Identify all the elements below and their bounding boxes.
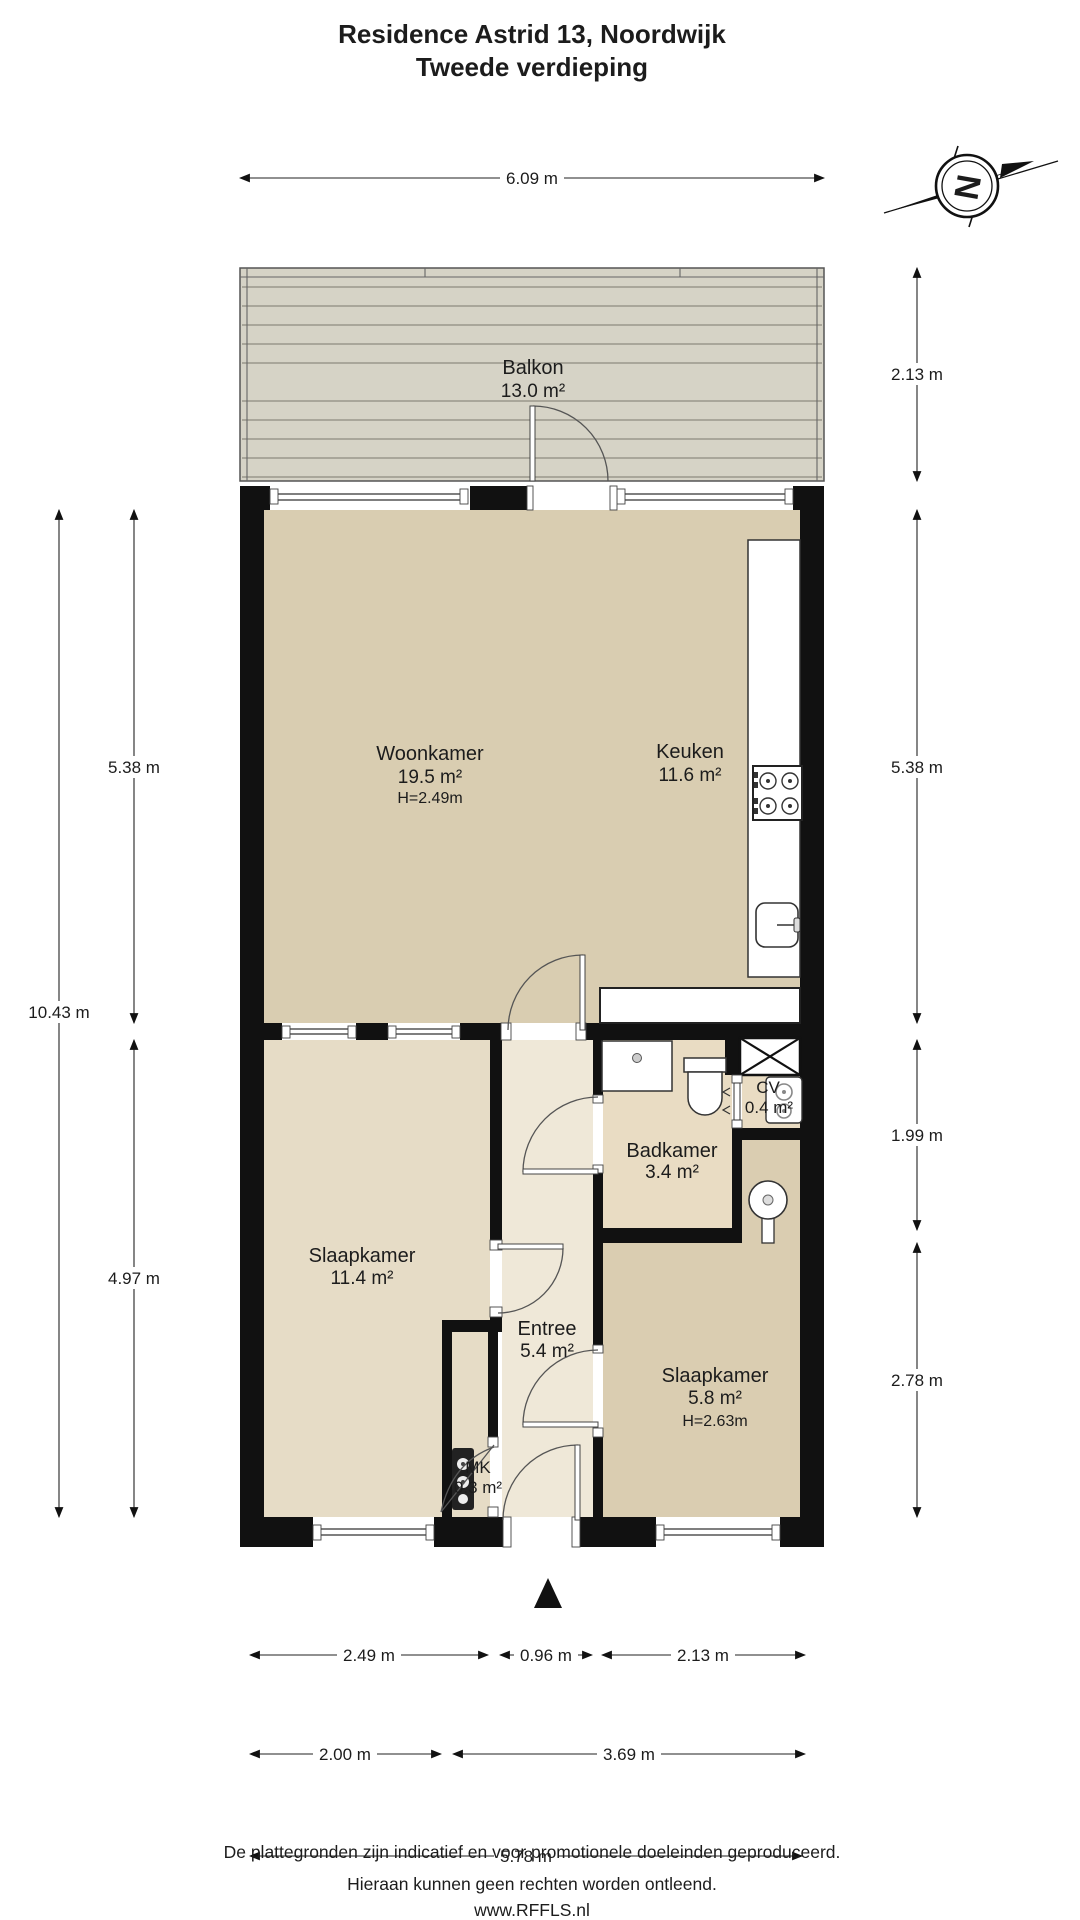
dimension-top: 6.09 m bbox=[240, 167, 824, 189]
closet-band bbox=[600, 988, 800, 1023]
toilet-icon bbox=[684, 1058, 726, 1115]
dimension-right-middle: 1.99 m bbox=[885, 1040, 949, 1230]
label-keuken: Keuken bbox=[656, 741, 724, 763]
floor-plan-canvas: Residence Astrid 13, Noordwijk Tweede ve… bbox=[0, 0, 1080, 1920]
svg-text:10.43 m: 10.43 m bbox=[28, 1003, 89, 1022]
dimension-bottom-row2: 2.00 m 3.69 m bbox=[250, 1743, 805, 1765]
kitchen-sink-icon bbox=[756, 903, 800, 947]
svg-text:2.49 m: 2.49 m bbox=[343, 1646, 395, 1665]
label-slaapkamer-groot-area: 11.4 m² bbox=[330, 1268, 393, 1289]
footer-disclaimer: De plattegronden zijn indicatief en voor… bbox=[224, 1842, 841, 1920]
dimension-left-lower: 4.97 m bbox=[102, 1040, 166, 1517]
dimension-left-outer: 10.43 m bbox=[22, 510, 96, 1517]
label-woonkamer: Woonkamer bbox=[376, 743, 484, 765]
svg-text:2.00 m: 2.00 m bbox=[319, 1745, 371, 1764]
dimension-right-living: 5.38 m bbox=[885, 510, 949, 1023]
svg-text:1.99 m: 1.99 m bbox=[891, 1126, 943, 1145]
svg-text:0.96 m: 0.96 m bbox=[520, 1646, 572, 1665]
label-mk-area: 0.3 m² bbox=[454, 1478, 503, 1497]
dimension-bottom-row1: 2.49 m 0.96 m 2.13 m bbox=[250, 1644, 805, 1666]
washbasin-icon bbox=[602, 1041, 672, 1091]
shaft-icon bbox=[740, 1038, 800, 1075]
wall-right bbox=[800, 510, 824, 1517]
dimension-right-balcony: 2.13 m bbox=[885, 268, 949, 481]
svg-text:5.38 m: 5.38 m bbox=[108, 758, 160, 777]
page-title: Residence Astrid 13, Noordwijk bbox=[338, 19, 726, 49]
label-entree: Entree bbox=[518, 1318, 577, 1340]
label-slaapkamer-klein-area: 5.8 m² bbox=[688, 1388, 742, 1409]
floorplan-page: Residence Astrid 13, Noordwijk Tweede ve… bbox=[0, 0, 1080, 1920]
dimension-right-lower: 2.78 m bbox=[885, 1243, 949, 1517]
label-slaapkamer-klein-height: H=2.63m bbox=[682, 1413, 747, 1430]
entrance-arrow-icon bbox=[534, 1578, 562, 1608]
svg-text:www.RFFLS.nl: www.RFFLS.nl bbox=[473, 1900, 590, 1920]
svg-text:4.97 m: 4.97 m bbox=[108, 1269, 160, 1288]
stove-icon bbox=[753, 766, 802, 820]
wall-left bbox=[240, 510, 264, 1517]
balcony-door-leaf bbox=[530, 406, 535, 481]
label-cv: CV bbox=[756, 1078, 780, 1097]
label-slaapkamer-klein: Slaapkamer bbox=[662, 1365, 769, 1387]
room-area: 13.0 m² bbox=[501, 381, 565, 402]
label-badkamer-area: 3.4 m² bbox=[645, 1162, 699, 1183]
room-label: Balkon bbox=[502, 357, 563, 379]
svg-text:3.69 m: 3.69 m bbox=[603, 1745, 655, 1764]
label-slaapkamer-groot: Slaapkamer bbox=[309, 1245, 416, 1267]
svg-text:2.13 m: 2.13 m bbox=[677, 1646, 729, 1665]
svg-text:Hieraan kunnen geen rechten wo: Hieraan kunnen geen rechten worden ontle… bbox=[347, 1874, 717, 1894]
label-keuken-area: 11.6 m² bbox=[658, 765, 721, 786]
label-mk: MK bbox=[465, 1458, 491, 1477]
label-badkamer: Badkamer bbox=[626, 1140, 717, 1162]
label-entree-area: 5.4 m² bbox=[520, 1341, 574, 1362]
svg-text:2.13 m: 2.13 m bbox=[891, 365, 943, 384]
page-subtitle: Tweede verdieping bbox=[416, 52, 648, 82]
svg-text:5.38 m: 5.38 m bbox=[891, 758, 943, 777]
label-woonkamer-area: 19.5 m² bbox=[398, 767, 462, 788]
label-woonkamer-height: H=2.49m bbox=[397, 790, 462, 807]
room-balkon: Balkon 13.0 m² bbox=[240, 268, 824, 481]
compass-icon: N bbox=[884, 146, 1058, 227]
svg-text:6.09 m: 6.09 m bbox=[506, 169, 558, 188]
dimension-left-upper: 5.38 m bbox=[102, 510, 166, 1023]
label-cv-area: 0.4 m² bbox=[745, 1098, 794, 1117]
svg-text:2.78 m: 2.78 m bbox=[891, 1371, 943, 1390]
svg-text:De plattegronden zijn indicati: De plattegronden zijn indicatief en voor… bbox=[224, 1842, 841, 1862]
